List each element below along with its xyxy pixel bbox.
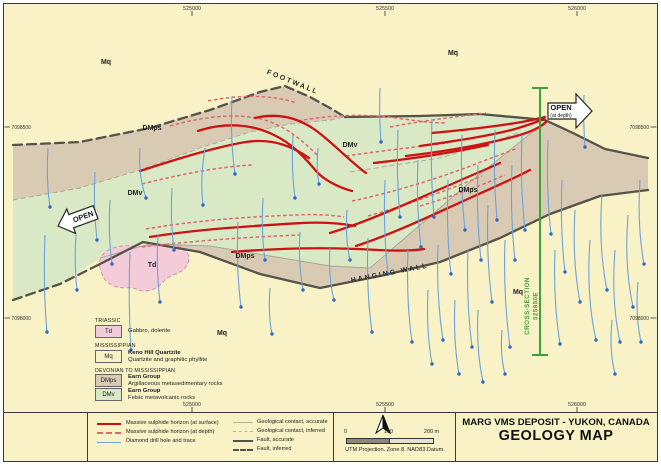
unit-label-dmv: DMv: [343, 142, 358, 149]
unit-label-dmps: DMps: [458, 187, 477, 194]
map-title-line1: MARG VMS DEPOSIT - YUKON, CANADA: [457, 417, 655, 428]
coordinate-label-top: 525500: [376, 6, 394, 12]
drill-hole-end-dot: [549, 232, 552, 235]
drill-hole-trace: [428, 290, 433, 364]
unit-code: Td: [105, 329, 112, 335]
cross-section-label: 525950E: [533, 292, 540, 320]
map-title-line2: GEOLOGY MAP: [457, 428, 655, 444]
drill-hole-end-dot: [578, 300, 581, 303]
drill-hole-end-dot: [631, 305, 634, 308]
drill-hole-end-dot: [370, 330, 373, 333]
drill-hole-end-dot: [558, 342, 561, 345]
drill-hole-end-dot: [523, 228, 526, 231]
drill-hole-end-dot: [172, 248, 175, 251]
drill-hole-end-dot: [45, 330, 48, 333]
scale-bar-right: [389, 438, 434, 444]
legend-label: Geological contact, accurate: [257, 419, 328, 426]
unit-label-dmv: DMv: [128, 190, 143, 197]
drill-hole-end-dot: [293, 196, 296, 199]
drill-hole-trace: [574, 210, 580, 302]
coordinate-label-left: 7098500: [12, 125, 32, 131]
coordinate-label-bottom: 526000: [568, 402, 586, 408]
drill-hole-end-dot: [419, 245, 422, 248]
drill-hole-end-dot: [470, 345, 473, 348]
drill-hole-trace: [601, 195, 607, 290]
drill-hole-trace: [478, 310, 483, 382]
drill-hole-end-dot: [594, 338, 597, 341]
drill-hole-end-dot: [239, 305, 242, 308]
drill-hole-end-dot: [563, 270, 566, 273]
drill-hole-end-dot: [270, 332, 273, 335]
drill-hole-end-dot: [398, 215, 401, 218]
drill-hole-end-dot: [481, 380, 484, 383]
coordinate-label-top: 525000: [183, 6, 201, 12]
era-header-triassic: TRIASSIC: [95, 318, 121, 324]
geological-contact-accurate-symbol: [233, 422, 253, 423]
diamond-drill-hole-symbol: [97, 442, 121, 443]
coordinate-label-left: 7098000: [12, 316, 32, 322]
legend-label: Massive sulphide horizon (at surface): [126, 420, 219, 427]
projection-note: UTM Projection. Zone 8. NAD83 Datum.: [336, 447, 454, 453]
legend-label: Geological contact, inferred: [257, 428, 325, 435]
massive-sulphide-depth-symbol: [97, 432, 121, 434]
unit-label-dmps: DMps: [235, 253, 254, 260]
era-header-mississippian: MISSISSIPPIAN: [95, 343, 136, 349]
unit-label-mq: Mq: [513, 289, 523, 296]
fault-accurate-symbol: [233, 440, 253, 442]
drill-hole-end-dot: [95, 238, 98, 241]
drill-hole-trace: [269, 288, 272, 334]
unit-name: Earn Group: [128, 388, 160, 395]
drill-hole-end-dot: [495, 218, 498, 221]
unit-label-td: Td: [148, 262, 157, 269]
drill-hole-trace: [637, 282, 641, 342]
unit-name: Keno Hill Quartzite: [128, 350, 181, 357]
drill-hole-trace: [455, 300, 460, 374]
drill-hole-end-dot: [201, 203, 204, 206]
drill-hole-end-dot: [490, 300, 493, 303]
drill-hole-end-dot: [432, 215, 435, 218]
drill-hole-end-dot: [75, 288, 78, 291]
drill-hole-trace: [555, 250, 560, 344]
strip-divider-1: [87, 412, 88, 461]
drill-hole-end-dot: [158, 300, 161, 303]
drill-hole-end-dot: [379, 140, 382, 143]
legend-label: Massive sulphide horizon (at depth): [126, 429, 214, 436]
unit-code: Mq: [104, 354, 112, 360]
unit-swatch-dmps: DMps: [95, 374, 122, 387]
drill-hole-end-dot: [613, 372, 616, 375]
drill-hole-end-dot: [263, 258, 266, 261]
fault-inferred-symbol: [233, 449, 253, 451]
drill-hole-end-dot: [110, 262, 113, 265]
open-arrow-right-sublabel: (at depth): [550, 113, 572, 119]
unit-desc: Felsic metavolcanic rocks: [128, 395, 195, 402]
drill-hole-end-dot: [332, 298, 335, 301]
drill-hole-trace: [614, 250, 620, 342]
scale-tick-200: 200 m: [424, 429, 439, 435]
coordinate-label-bottom: 525500: [376, 402, 394, 408]
legend-label: Fault, inferred: [257, 446, 292, 453]
drill-hole-trace: [468, 250, 473, 347]
drill-hole-trace: [611, 320, 615, 374]
legend-label: Fault, accurate: [257, 437, 294, 444]
drill-hole-end-dot: [618, 340, 621, 343]
unit-label-mq: Mq: [448, 50, 458, 57]
strip-divider-3: [455, 412, 456, 461]
coordinate-label-bottom: 525000: [183, 402, 201, 408]
drill-hole-trace: [627, 215, 633, 307]
drill-hole-end-dot: [503, 372, 506, 375]
unit-swatch-mq: Mq: [95, 350, 122, 363]
legend-label: Diamond drill hole and trace: [126, 438, 196, 445]
drill-hole-end-dot: [642, 262, 645, 265]
drill-hole-trace: [505, 240, 510, 347]
unit-desc: Quartzite and graphitic phyllite: [128, 357, 207, 364]
unit-swatch-dmv: DMv: [95, 388, 122, 401]
coordinate-label-right: 7098000: [630, 316, 650, 322]
drill-hole-end-dot: [457, 372, 460, 375]
drill-hole-end-dot: [449, 272, 452, 275]
drill-hole-end-dot: [348, 258, 351, 261]
unit-label-mq: Mq: [217, 330, 227, 337]
scale-bar-left: [346, 438, 391, 444]
drill-hole-end-dot: [583, 145, 586, 148]
drill-hole-end-dot: [605, 288, 608, 291]
coordinate-label-top: 526000: [568, 6, 586, 12]
unit-desc: Gabbro, dolerite: [128, 328, 170, 335]
unit-code: DMps: [101, 378, 117, 384]
legend-strip-divider: [4, 412, 657, 413]
massive-sulphide-surface-symbol: [97, 423, 121, 425]
drill-hole-end-dot: [301, 288, 304, 291]
unit-td: [99, 244, 188, 291]
drill-hole-end-dot: [463, 228, 466, 231]
drill-hole-end-dot: [479, 258, 482, 261]
open-arrow-right-label: OPEN: [550, 103, 571, 112]
unit-label-dmps: DMps: [142, 125, 161, 132]
drill-hole-end-dot: [144, 196, 147, 199]
geological-contact-inferred-symbol: [233, 431, 253, 432]
drill-hole-trace: [501, 330, 505, 374]
drill-hole-end-dot: [430, 362, 433, 365]
drill-hole-trace: [589, 240, 596, 340]
drill-hole-end-dot: [513, 258, 516, 261]
unit-desc: Argillaceous metasedimentary rocks: [128, 381, 223, 388]
unit-label-mq: Mq: [101, 59, 111, 66]
unit-swatch-td: Td: [95, 325, 122, 338]
drill-hole-end-dot: [639, 340, 642, 343]
drill-hole-end-dot: [410, 340, 413, 343]
drill-hole-end-dot: [441, 338, 444, 341]
drill-hole-trace: [639, 180, 644, 264]
drill-hole-end-dot: [233, 172, 236, 175]
drill-hole-end-dot: [508, 345, 511, 348]
geology-map-page: CROSS-SECTION525950EMqMqMqMqDMpsDMpsDMps…: [0, 0, 661, 465]
scale-tick-0: 0: [344, 429, 347, 435]
coordinate-label-right: 7098500: [630, 125, 650, 131]
strip-divider-2: [333, 412, 334, 461]
scale-tick-100: 100: [384, 429, 393, 435]
unit-name: Earn Group: [128, 374, 160, 381]
drill-hole-end-dot: [317, 182, 320, 185]
cross-section-label: CROSS-SECTION: [524, 277, 531, 335]
unit-code: DMv: [102, 392, 114, 398]
drill-hole-end-dot: [48, 205, 51, 208]
